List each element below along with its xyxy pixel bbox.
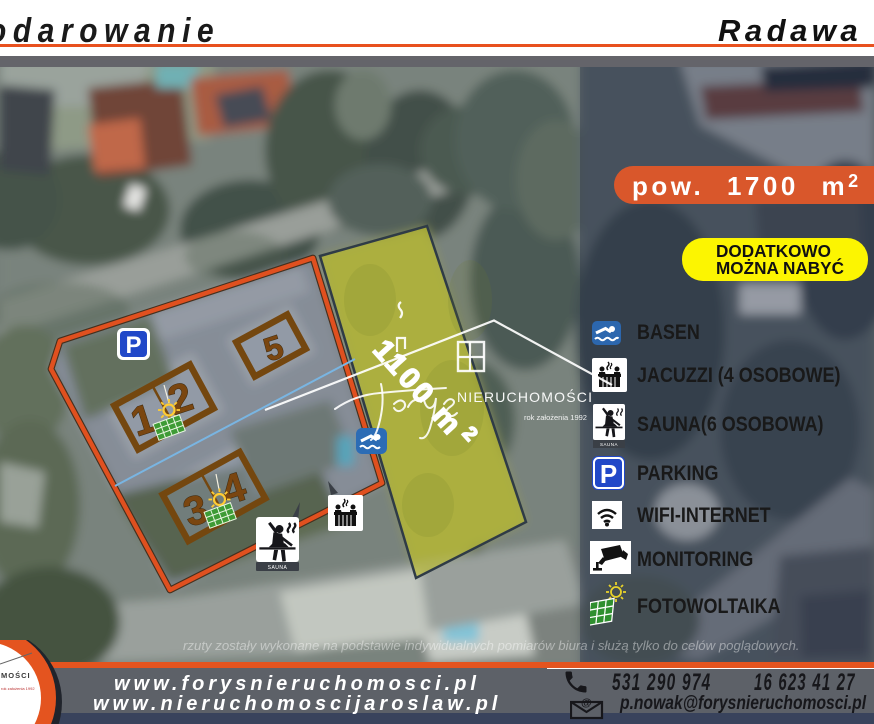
- svg-text:SAUNA: SAUNA: [268, 565, 288, 571]
- svg-text:rok założenia 1992: rok założenia 1992: [524, 413, 587, 422]
- svg-text:NIERUCHOMOŚCI: NIERUCHOMOŚCI: [457, 388, 593, 405]
